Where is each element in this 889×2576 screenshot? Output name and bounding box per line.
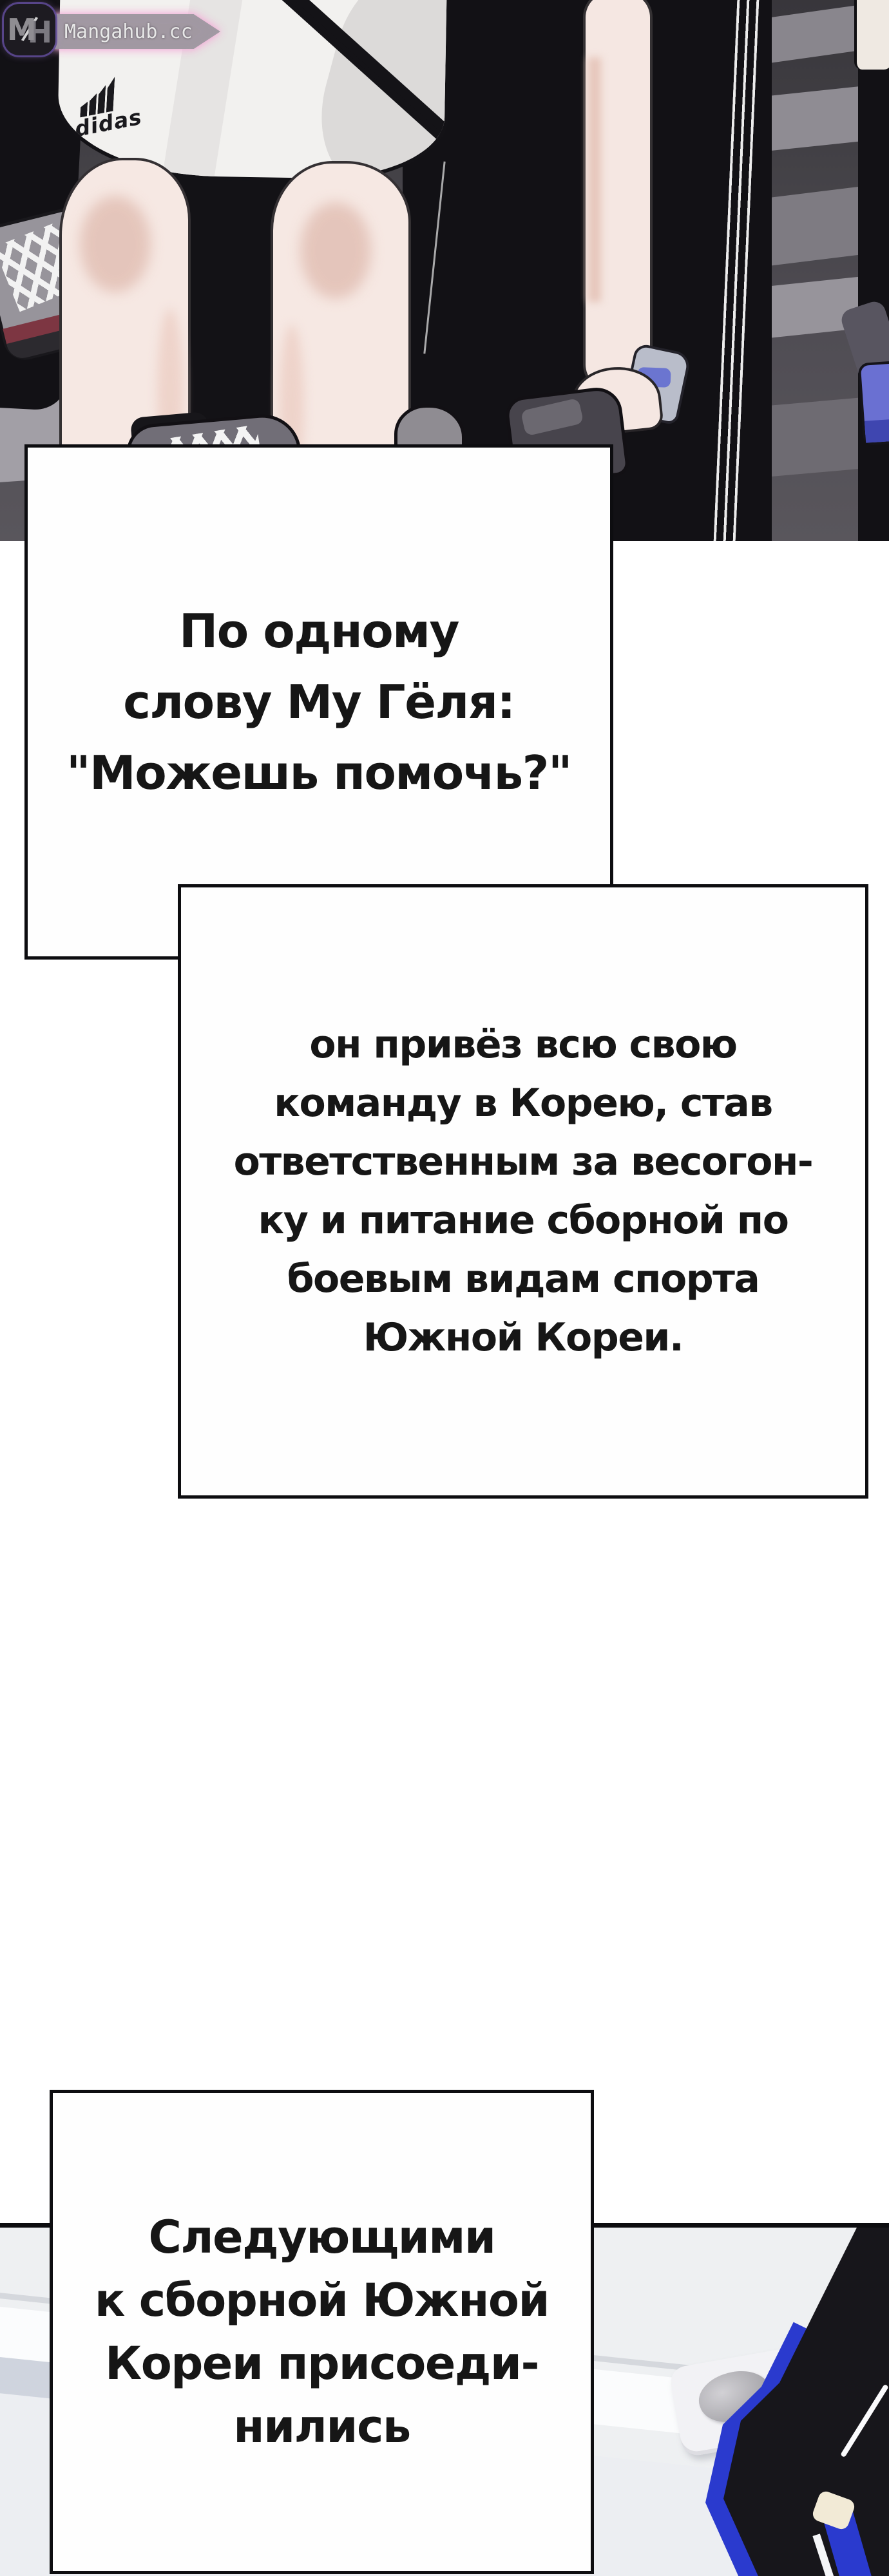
watermark: Mangahub.cc M H [0, 0, 271, 64]
pants-highlight-seam [423, 162, 445, 354]
white-triple-stripe [712, 0, 760, 541]
blue-sneaker-right [858, 361, 889, 446]
speech-line: к сборной Южной [95, 2269, 549, 2332]
speech-box-1: По одному слову Му Гёля: "Можешь помочь?… [24, 444, 613, 960]
sneaker-tongue [521, 398, 584, 437]
speech-box-2: он привёз всю свою команду в Корею, став… [178, 884, 868, 1499]
speech-line: Южной Кореи. [363, 1309, 683, 1367]
monogram-m: M [7, 12, 37, 47]
speech-line: слову Му Гёля: [123, 667, 515, 737]
speech-line: он привёз всю свою [309, 1016, 736, 1074]
speech-line: Следующими [148, 2206, 495, 2269]
speech-line: ответственным за весогон- [234, 1133, 813, 1191]
manga-page: didas [0, 0, 889, 2576]
speech-line: По одному [179, 596, 459, 667]
leg-shading [588, 57, 601, 302]
sneaker-sole [865, 419, 889, 443]
knee-shading [80, 196, 151, 292]
tracksuit-athlete [683, 2228, 889, 2576]
speech-line: команду в Корею, став [274, 1074, 772, 1133]
speech-box-3: Следующими к сборной Южной Кореи присоед… [50, 2090, 594, 2574]
mangahub-badge: M H [4, 4, 55, 55]
speech-line: боевым видам спорта [287, 1250, 760, 1309]
speech-line: ку и питание сборной по [258, 1191, 789, 1250]
mangahub-banner: Mangahub.cc [54, 14, 220, 49]
speech-line: Кореи присоеди- [105, 2332, 539, 2395]
skinny-bare-leg [583, 0, 653, 392]
white-shorts-edge-right [854, 0, 889, 70]
speech-line: нились [233, 2395, 410, 2458]
knee-shading [300, 202, 371, 299]
black-figure-right [858, 0, 889, 541]
adidas-logo-icon: didas [66, 71, 155, 153]
banner-glow: Mangahub.cc [54, 14, 220, 49]
speech-line: "Можешь помочь?" [66, 737, 571, 808]
striped-track-pants [649, 0, 772, 541]
site-label: Mangahub.cc [64, 21, 193, 43]
